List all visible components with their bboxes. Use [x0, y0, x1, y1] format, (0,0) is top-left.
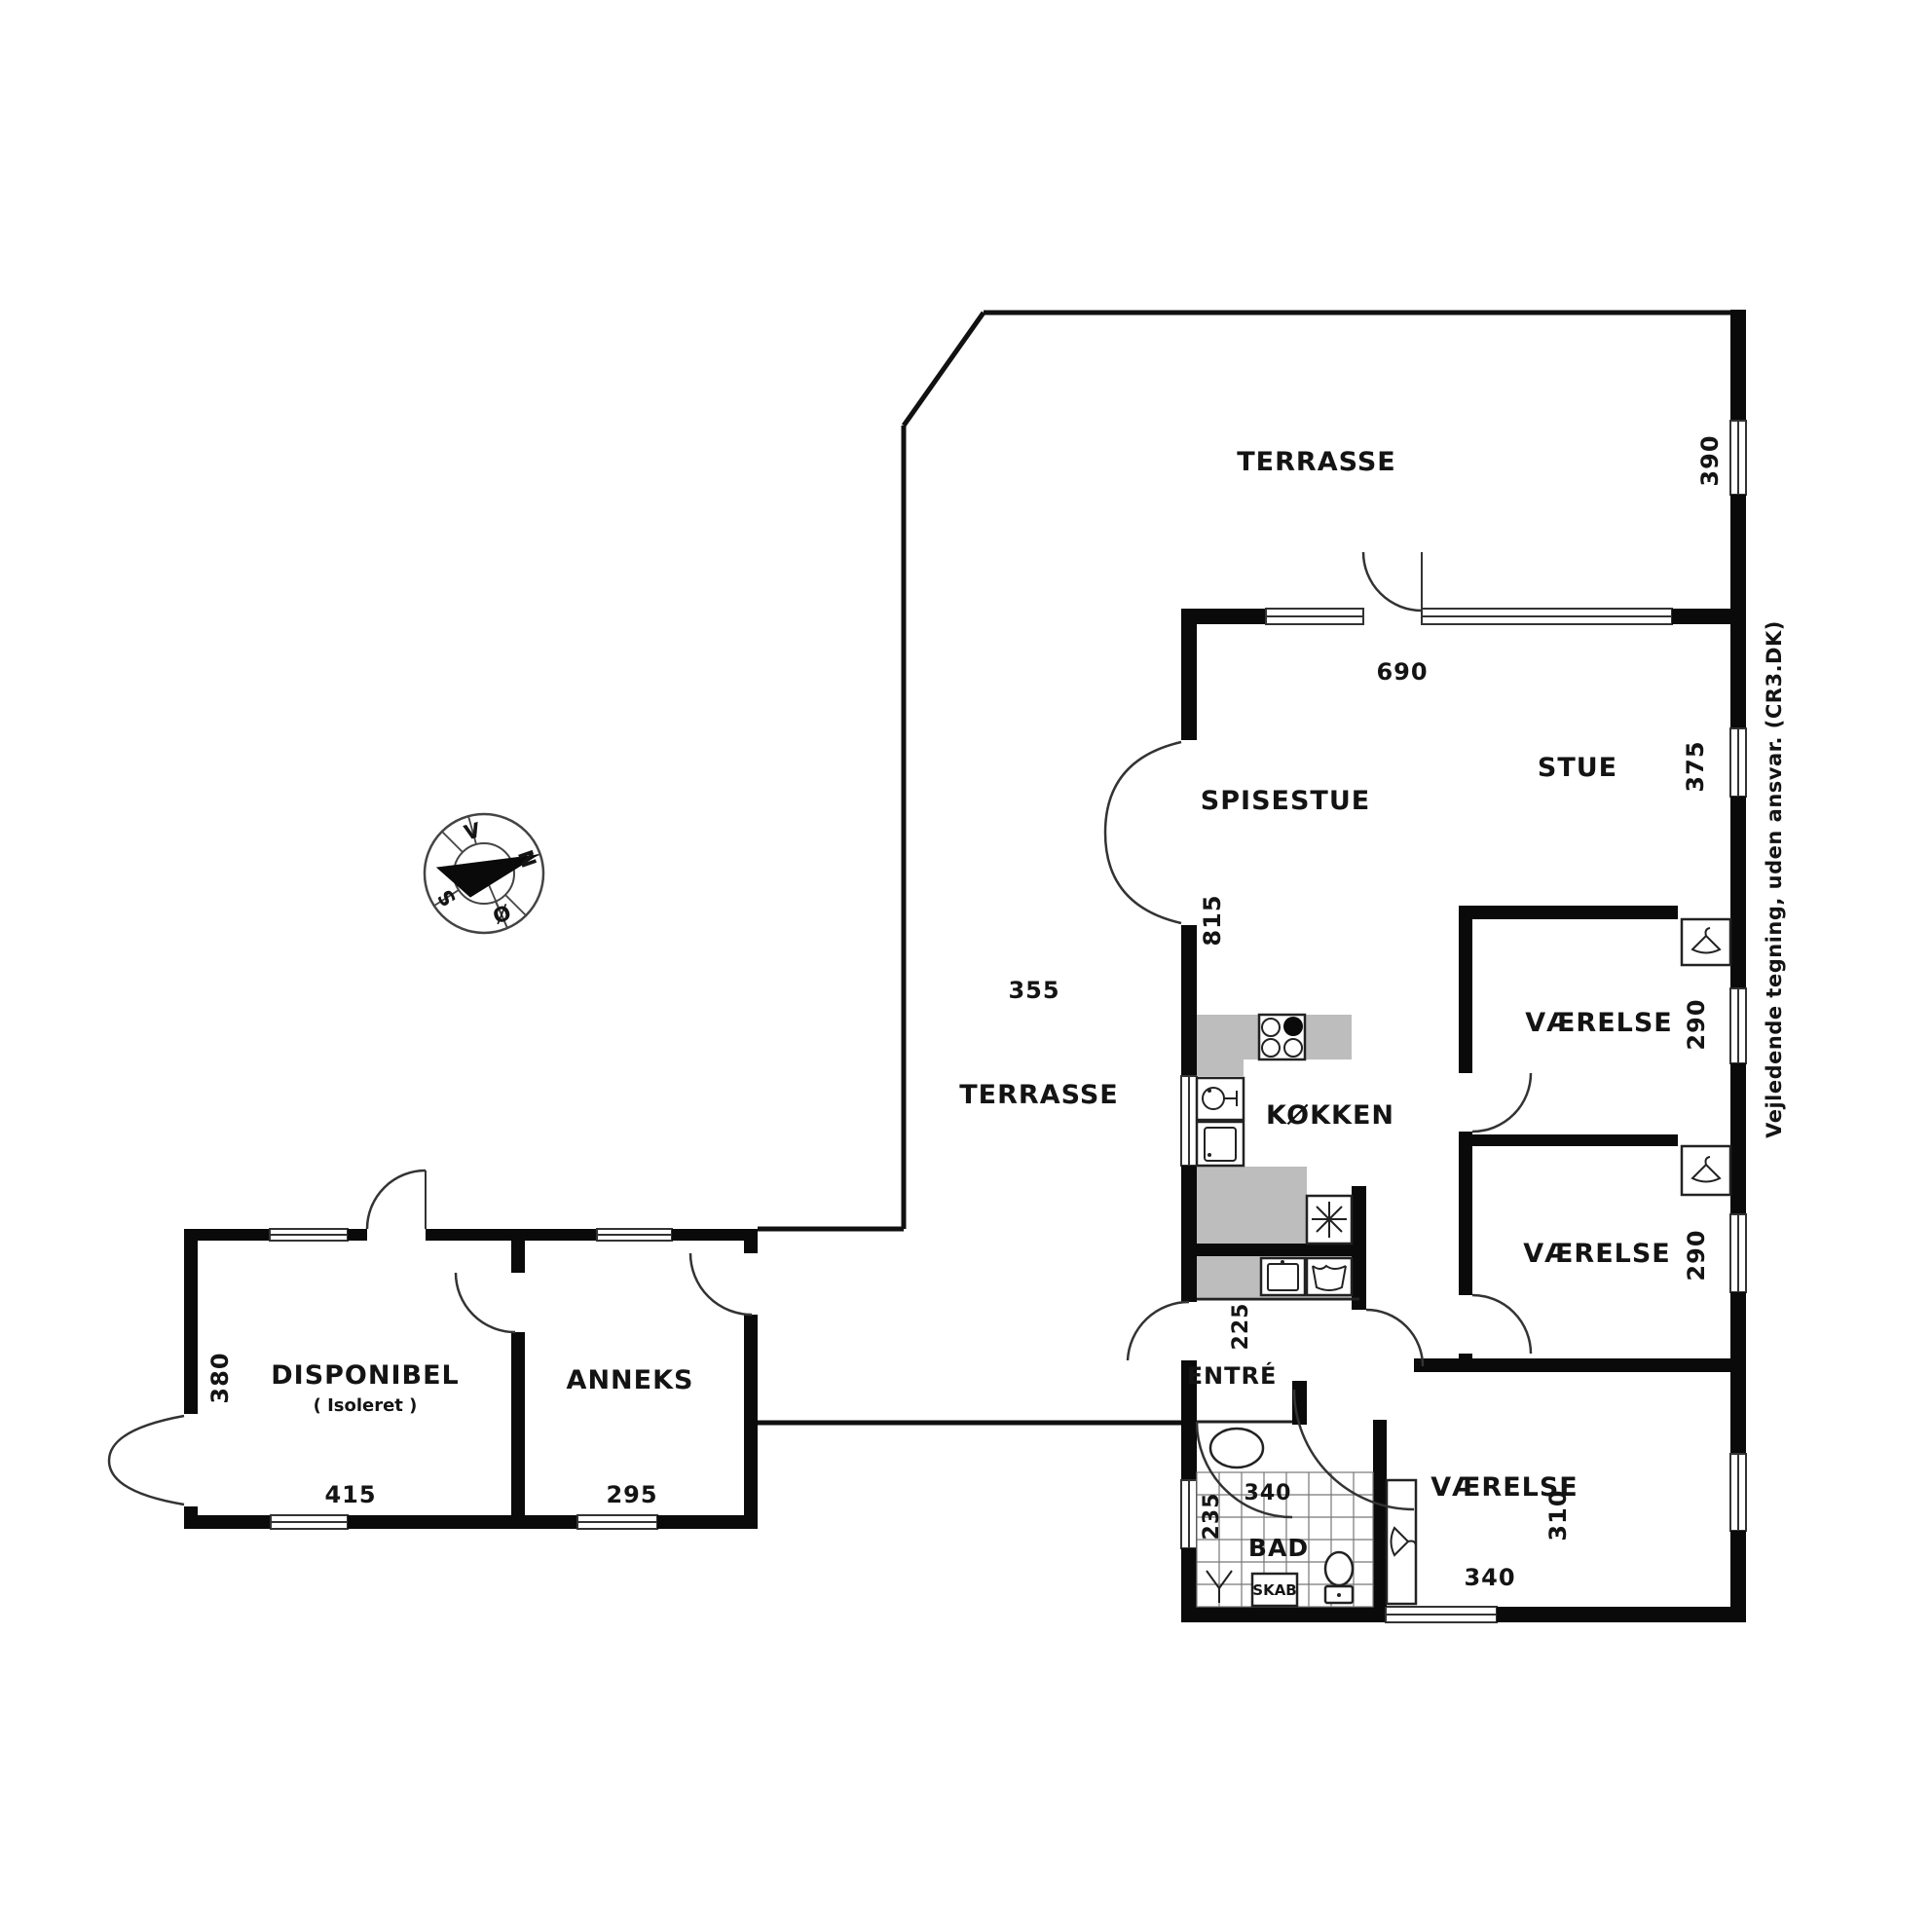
dim-235: 235 [1200, 1493, 1224, 1541]
dim-225: 225 [1229, 1303, 1253, 1351]
kitchen-sink-icon [1197, 1078, 1244, 1120]
label-bad: BAD [1248, 1534, 1309, 1562]
label-terrasse-upper: TERRASSE [1237, 447, 1395, 477]
skab-label: SKAB [1252, 1581, 1296, 1599]
toilet-icon [1325, 1552, 1353, 1603]
laundry-sink-icon [1261, 1258, 1305, 1295]
label-anneks: ANNEKS [567, 1365, 694, 1395]
label-terrasse-lower: TERRASSE [959, 1080, 1118, 1110]
fan-icon [1307, 1196, 1352, 1244]
label-stue: STUE [1538, 753, 1617, 783]
label-spisestue: SPISESTUE [1201, 786, 1370, 816]
bath-cabinet: SKAB [1252, 1574, 1297, 1606]
label-isoleret: ( Isoleret ) [314, 1395, 418, 1416]
washbasin-icon [1210, 1429, 1263, 1468]
dim-690: 690 [1376, 658, 1428, 686]
dim-310: 310 [1544, 1489, 1572, 1541]
dim-295: 295 [606, 1481, 657, 1508]
dim-340-bad: 340 [1245, 1481, 1292, 1505]
dim-380: 380 [206, 1352, 234, 1403]
dim-375: 375 [1682, 740, 1709, 792]
closet-v2 [1682, 1146, 1730, 1195]
dishwasher-icon [1197, 1122, 1244, 1166]
disclaimer-text: Vejledende tegning, uden ansvar. (CR3.DK… [1763, 620, 1786, 1138]
dim-290-1: 290 [1683, 998, 1710, 1050]
closet-v3 [1387, 1480, 1416, 1604]
stove-icon [1259, 1015, 1305, 1059]
dim-390: 390 [1696, 434, 1724, 486]
dim-355: 355 [1008, 977, 1059, 1004]
label-vaerelse2: VÆRELSE [1523, 1239, 1671, 1269]
label-disponibel: DISPONIBEL [271, 1360, 460, 1391]
dim-815: 815 [1199, 894, 1226, 946]
dim-340-v3: 340 [1464, 1564, 1515, 1591]
terrace-east-wall [1730, 310, 1746, 613]
washtub-icon [1307, 1258, 1352, 1295]
floor-plan: SKAB [0, 0, 1932, 1932]
compass-rose: N Ø S V [425, 814, 543, 933]
dim-415: 415 [324, 1481, 376, 1508]
label-entre: ENTRÉ [1187, 1361, 1278, 1390]
closet-v1 [1682, 919, 1730, 965]
label-kokken: KØKKEN [1266, 1100, 1394, 1131]
dim-290-2: 290 [1683, 1229, 1710, 1281]
label-vaerelse1: VÆRELSE [1525, 1008, 1673, 1038]
